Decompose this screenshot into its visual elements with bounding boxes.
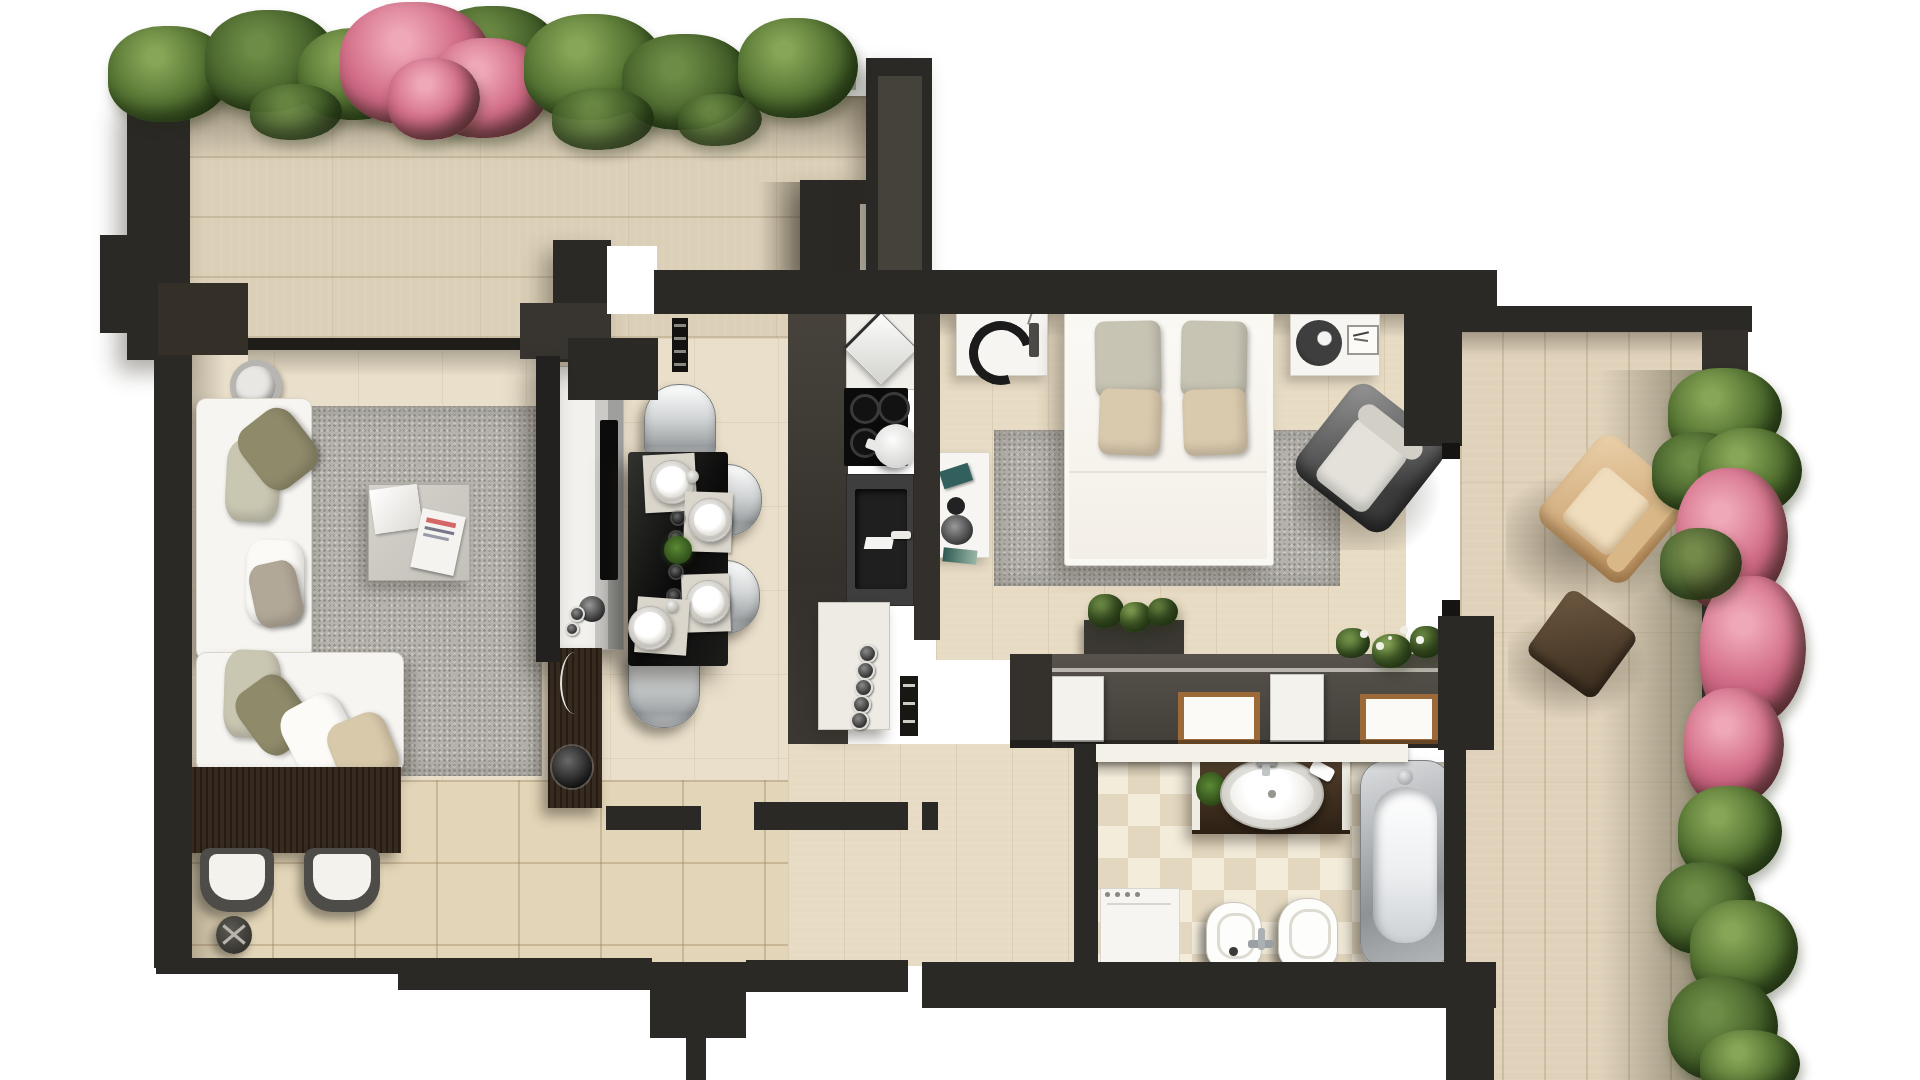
hedge-overhang: [250, 84, 342, 140]
hedge-bush-right: [1700, 1030, 1800, 1080]
floor-plan-canvas: [0, 0, 1920, 1080]
hedge-bush: [738, 18, 858, 118]
plants-layer: [0, 0, 1920, 1080]
hedge-overhang: [552, 88, 654, 150]
hedge-overhang: [678, 94, 762, 146]
